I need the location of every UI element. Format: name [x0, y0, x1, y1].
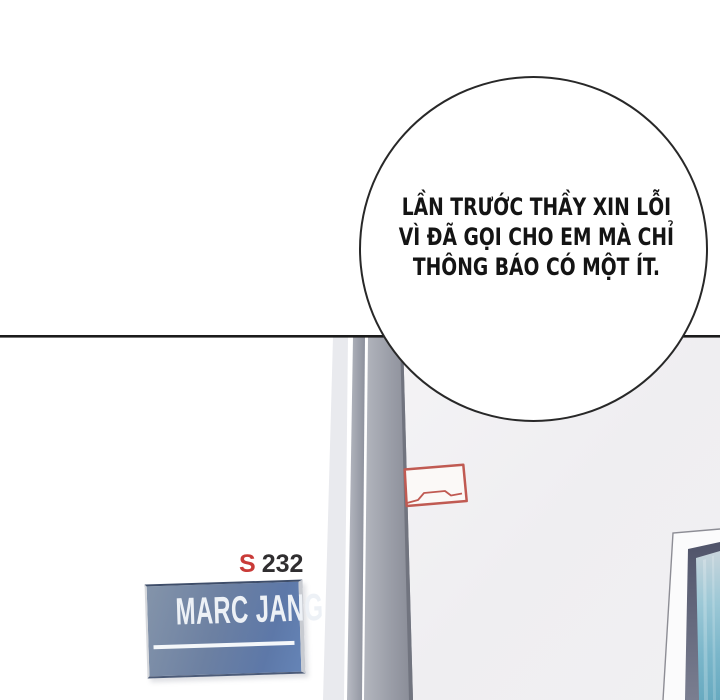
speech-text-line: LẦN TRƯỚC THẦY XIN LỖI [399, 192, 674, 222]
speech-bubble: LẦN TRƯỚC THẦY XIN LỖI VÌ ĐÃ GỌI CHO EM … [359, 76, 708, 422]
speech-bubble-inner: LẦN TRƯỚC THẦY XIN LỖI VÌ ĐÃ GỌI CHO EM … [361, 78, 706, 420]
speech-text: LẦN TRƯỚC THẦY XIN LỖI VÌ ĐÃ GỌI CHO EM … [399, 192, 674, 282]
room-code-letter: S [239, 550, 256, 578]
door-casing-strip [323, 337, 348, 700]
name-plate-text: MARC JANG [175, 590, 272, 633]
room-code-number: 232 [262, 550, 304, 578]
door-card-holder-icon [405, 465, 467, 506]
speech-text-line: VÌ ĐÃ GỌI CHO EM MÀ CHỈ [399, 222, 674, 252]
name-plate: MARC JANG [145, 580, 306, 679]
name-plate-rule [153, 641, 294, 649]
comic-panel: LẦN TRƯỚC THẦY XIN LỖI VÌ ĐÃ GỌI CHO EM … [0, 0, 720, 700]
speech-text-line: THÔNG BÁO CÓ MỘT ÍT. [399, 252, 674, 282]
room-code-label: S232 [239, 551, 303, 578]
window-glass [696, 551, 720, 700]
